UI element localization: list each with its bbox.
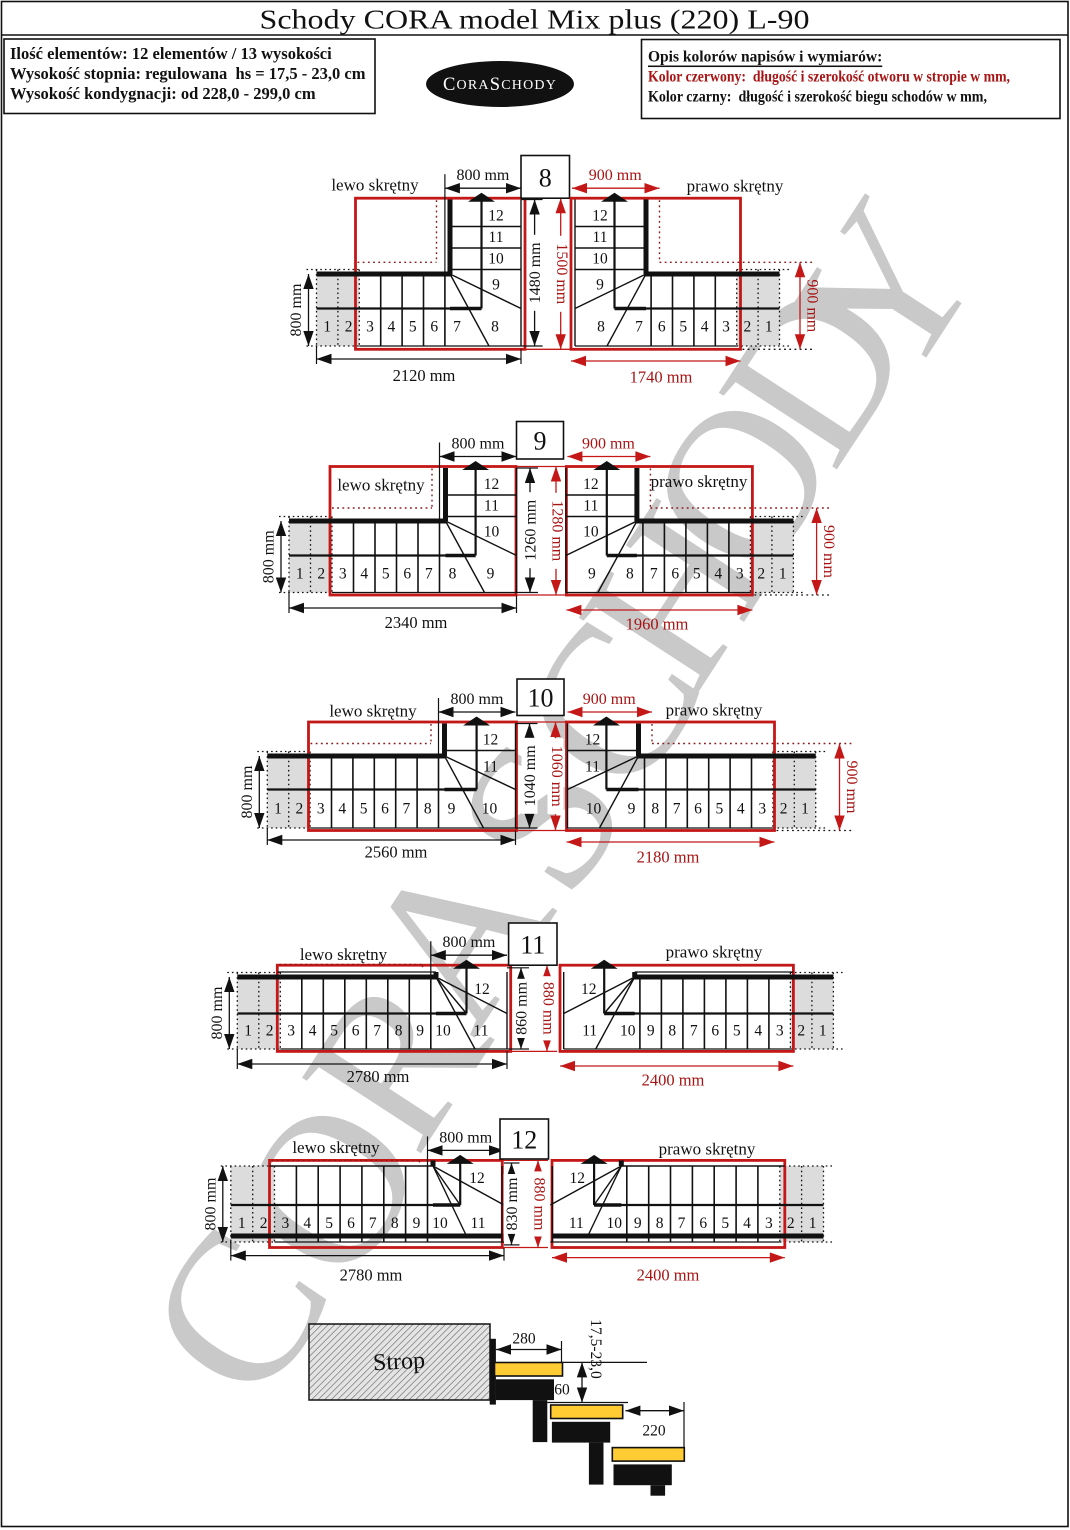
svg-text:11: 11	[471, 1215, 486, 1232]
svg-text:5: 5	[360, 800, 368, 817]
svg-text:9: 9	[596, 277, 604, 294]
svg-text:11: 11	[569, 1215, 584, 1232]
svg-text:12: 12	[585, 732, 601, 749]
svg-text:830 mm: 830 mm	[504, 1177, 521, 1230]
svg-text:9: 9	[534, 427, 547, 456]
svg-text:8: 8	[651, 800, 659, 817]
svg-text:3: 3	[317, 800, 325, 817]
svg-text:800 mm: 800 mm	[442, 934, 495, 951]
svg-text:lewo skrętny: lewo skrętny	[331, 176, 419, 195]
svg-text:12: 12	[583, 476, 599, 493]
svg-text:Opis kolorów napisów i wymiaró: Opis kolorów napisów i wymiarów:	[648, 49, 882, 66]
svg-text:5: 5	[733, 1023, 741, 1040]
svg-text:8: 8	[668, 1023, 676, 1040]
svg-text:800 mm: 800 mm	[451, 691, 504, 708]
svg-text:11: 11	[489, 229, 504, 246]
svg-text:5: 5	[330, 1023, 338, 1040]
svg-text:8: 8	[395, 1023, 403, 1040]
svg-text:12: 12	[474, 981, 490, 998]
svg-text:Schody CORA model Mix plus (22: Schody CORA model Mix plus (220) L-90	[260, 5, 810, 35]
svg-text:1260 mm: 1260 mm	[523, 499, 540, 560]
svg-text:800 mm: 800 mm	[456, 167, 509, 184]
svg-text:CORASCHODY: CORASCHODY	[443, 75, 557, 95]
svg-text:Wysokość kondygnacji: od 228,0: Wysokość kondygnacji: od 228,0 - 299,0 c…	[10, 84, 316, 103]
svg-text:900 mm: 900 mm	[804, 279, 821, 332]
svg-text:2: 2	[317, 566, 325, 583]
svg-text:11: 11	[474, 1023, 489, 1040]
svg-text:8: 8	[424, 800, 432, 817]
svg-text:10: 10	[432, 1215, 448, 1232]
svg-text:1: 1	[274, 800, 282, 817]
svg-text:5: 5	[382, 566, 390, 583]
svg-text:280: 280	[512, 1331, 536, 1348]
svg-text:1: 1	[779, 566, 787, 583]
svg-text:12: 12	[483, 732, 499, 749]
svg-text:10: 10	[583, 524, 599, 541]
svg-text:4: 4	[388, 319, 396, 336]
svg-text:12: 12	[511, 1126, 537, 1155]
svg-text:4: 4	[360, 566, 368, 583]
svg-text:Kolor czarny: długość i szero: Kolor czarny: długość i szerokość biegu …	[648, 89, 987, 106]
svg-text:4: 4	[309, 1023, 317, 1040]
svg-text:3: 3	[287, 1023, 295, 1040]
svg-text:2560 mm: 2560 mm	[365, 843, 428, 862]
svg-text:2400 mm: 2400 mm	[637, 1266, 700, 1285]
svg-text:8: 8	[656, 1215, 664, 1232]
svg-text:2180 mm: 2180 mm	[637, 848, 700, 867]
svg-text:11: 11	[520, 931, 545, 960]
svg-text:1: 1	[809, 1215, 817, 1232]
svg-text:prawo skrętny: prawo skrętny	[666, 943, 763, 962]
svg-text:6: 6	[671, 566, 679, 583]
svg-text:9: 9	[628, 800, 636, 817]
svg-text:1060 mm: 1060 mm	[548, 746, 565, 807]
svg-text:12: 12	[469, 1170, 485, 1187]
svg-text:prawo skrętny: prawo skrętny	[659, 1140, 756, 1159]
svg-text:1960 mm: 1960 mm	[626, 615, 689, 634]
svg-text:lewo skrętny: lewo skrętny	[337, 476, 425, 495]
svg-text:10: 10	[484, 524, 500, 541]
svg-text:2: 2	[345, 319, 353, 336]
svg-text:3: 3	[339, 566, 347, 583]
svg-text:3: 3	[722, 319, 730, 336]
svg-text:10: 10	[482, 800, 498, 817]
svg-text:10: 10	[488, 251, 504, 268]
svg-text:900 mm: 900 mm	[843, 761, 860, 814]
svg-text:4: 4	[714, 566, 722, 583]
svg-text:7: 7	[425, 566, 433, 583]
svg-text:2: 2	[797, 1023, 805, 1040]
svg-text:12: 12	[488, 208, 504, 225]
svg-text:4: 4	[701, 319, 709, 336]
svg-text:10: 10	[435, 1023, 451, 1040]
svg-text:800 mm: 800 mm	[239, 765, 256, 818]
svg-text:800 mm: 800 mm	[439, 1129, 492, 1146]
svg-text:8: 8	[391, 1215, 399, 1232]
svg-text:5: 5	[693, 566, 701, 583]
svg-text:1280 mm: 1280 mm	[549, 500, 566, 561]
svg-text:1: 1	[765, 319, 773, 336]
svg-text:2400 mm: 2400 mm	[642, 1071, 705, 1090]
svg-text:10: 10	[528, 684, 554, 713]
svg-text:800 mm: 800 mm	[452, 436, 505, 453]
svg-text:9: 9	[448, 800, 456, 817]
svg-text:9: 9	[487, 566, 495, 583]
svg-text:Kolor czerwony: długość i sze: Kolor czerwony: długość i szerokość otwo…	[648, 69, 1010, 86]
svg-text:10: 10	[586, 800, 602, 817]
svg-text:10: 10	[592, 251, 608, 268]
svg-text:6: 6	[658, 319, 666, 336]
svg-text:9: 9	[416, 1023, 424, 1040]
svg-text:900 mm: 900 mm	[583, 691, 636, 708]
svg-text:6: 6	[403, 566, 411, 583]
svg-text:5: 5	[721, 1215, 729, 1232]
svg-text:Strop: Strop	[372, 1348, 425, 1377]
svg-text:800 mm: 800 mm	[261, 530, 278, 583]
svg-text:9: 9	[492, 277, 500, 294]
svg-text:4: 4	[338, 800, 346, 817]
svg-text:3: 3	[736, 566, 744, 583]
svg-text:8: 8	[539, 163, 552, 192]
svg-text:7: 7	[453, 319, 461, 336]
svg-text:prawo skrętny: prawo skrętny	[666, 701, 763, 720]
svg-text:prawo skrętny: prawo skrętny	[651, 472, 748, 491]
svg-text:2: 2	[260, 1215, 268, 1232]
svg-text:Wysokość stopnia: regulowana: Wysokość stopnia: regulowana hs = 17,5 -…	[10, 64, 366, 83]
svg-text:3: 3	[282, 1215, 290, 1232]
svg-text:900 mm: 900 mm	[589, 167, 642, 184]
svg-text:1: 1	[801, 800, 809, 817]
svg-text:1480 mm: 1480 mm	[527, 242, 544, 303]
svg-text:880 mm: 880 mm	[540, 982, 557, 1035]
svg-text:900 mm: 900 mm	[582, 436, 635, 453]
svg-text:6: 6	[352, 1023, 360, 1040]
svg-text:800 mm: 800 mm	[209, 986, 226, 1039]
svg-text:11: 11	[583, 498, 598, 515]
svg-text:5: 5	[325, 1215, 333, 1232]
svg-text:1040 mm: 1040 mm	[522, 745, 539, 806]
svg-text:1: 1	[819, 1023, 827, 1040]
svg-text:12: 12	[581, 981, 597, 998]
svg-text:4: 4	[754, 1023, 762, 1040]
svg-text:11: 11	[582, 1023, 597, 1040]
svg-text:2: 2	[266, 1023, 274, 1040]
svg-text:6: 6	[711, 1023, 719, 1040]
svg-text:2: 2	[296, 800, 304, 817]
svg-text:7: 7	[369, 1215, 377, 1232]
svg-text:4: 4	[737, 800, 745, 817]
svg-text:1740 mm: 1740 mm	[630, 368, 693, 387]
svg-text:12: 12	[570, 1170, 586, 1187]
svg-text:7: 7	[673, 800, 681, 817]
svg-text:1500 mm: 1500 mm	[553, 243, 570, 304]
svg-text:9: 9	[647, 1023, 655, 1040]
svg-text:lewo skrętny: lewo skrętny	[292, 1138, 380, 1157]
svg-text:lewo skrętny: lewo skrętny	[329, 702, 417, 721]
svg-text:11: 11	[483, 759, 498, 776]
svg-text:3: 3	[758, 800, 766, 817]
svg-text:12: 12	[592, 208, 608, 225]
svg-text:4: 4	[743, 1215, 751, 1232]
svg-text:9: 9	[634, 1215, 642, 1232]
svg-text:7: 7	[690, 1023, 698, 1040]
svg-text:1: 1	[238, 1215, 246, 1232]
svg-text:8: 8	[597, 319, 605, 336]
svg-text:8: 8	[626, 566, 634, 583]
svg-text:880 mm: 880 mm	[531, 1178, 548, 1231]
svg-text:1: 1	[244, 1023, 252, 1040]
svg-text:1: 1	[296, 566, 304, 583]
svg-text:6: 6	[699, 1215, 707, 1232]
svg-text:2: 2	[757, 566, 765, 583]
svg-text:6: 6	[347, 1215, 355, 1232]
svg-text:3: 3	[366, 319, 374, 336]
svg-text:prawo skrętny: prawo skrętny	[687, 177, 784, 196]
svg-text:9: 9	[413, 1215, 421, 1232]
svg-text:7: 7	[403, 800, 411, 817]
svg-text:11: 11	[593, 229, 608, 246]
svg-text:10: 10	[607, 1215, 623, 1232]
svg-text:3: 3	[776, 1023, 784, 1040]
svg-text:3: 3	[765, 1215, 773, 1232]
svg-text:2120 mm: 2120 mm	[393, 366, 456, 385]
svg-text:2: 2	[780, 800, 788, 817]
svg-text:11: 11	[585, 759, 600, 776]
svg-text:2: 2	[744, 319, 752, 336]
svg-text:12: 12	[484, 476, 500, 493]
svg-text:8: 8	[491, 319, 499, 336]
svg-text:Ilość elementów: 12 elementów: Ilość elementów: 12 elementów / 13 wysok…	[10, 44, 332, 63]
svg-text:7: 7	[373, 1023, 381, 1040]
svg-text:6: 6	[694, 800, 702, 817]
svg-text:5: 5	[679, 319, 687, 336]
svg-text:7: 7	[635, 319, 643, 336]
svg-text:4: 4	[303, 1215, 311, 1232]
svg-text:2780 mm: 2780 mm	[347, 1067, 410, 1086]
svg-text:220: 220	[642, 1423, 666, 1440]
svg-text:800 mm: 800 mm	[202, 1177, 219, 1230]
svg-text:8: 8	[449, 566, 457, 583]
svg-text:5: 5	[409, 319, 417, 336]
svg-text:2340 mm: 2340 mm	[385, 613, 448, 632]
svg-text:900 mm: 900 mm	[820, 525, 837, 578]
svg-text:1: 1	[323, 319, 331, 336]
svg-text:17,5-23,0: 17,5-23,0	[587, 1319, 604, 1379]
svg-text:2780 mm: 2780 mm	[340, 1266, 403, 1285]
svg-text:5: 5	[716, 800, 724, 817]
svg-text:860 mm: 860 mm	[514, 981, 531, 1034]
svg-text:10: 10	[620, 1023, 636, 1040]
svg-text:60: 60	[554, 1382, 570, 1399]
svg-text:lewo skrętny: lewo skrętny	[300, 945, 388, 964]
svg-text:7: 7	[650, 566, 658, 583]
svg-text:2: 2	[787, 1215, 795, 1232]
svg-text:800 mm: 800 mm	[288, 283, 305, 336]
svg-text:6: 6	[430, 319, 438, 336]
svg-text:7: 7	[678, 1215, 686, 1232]
svg-text:6: 6	[381, 800, 389, 817]
svg-text:9: 9	[588, 566, 596, 583]
svg-text:11: 11	[484, 498, 499, 515]
